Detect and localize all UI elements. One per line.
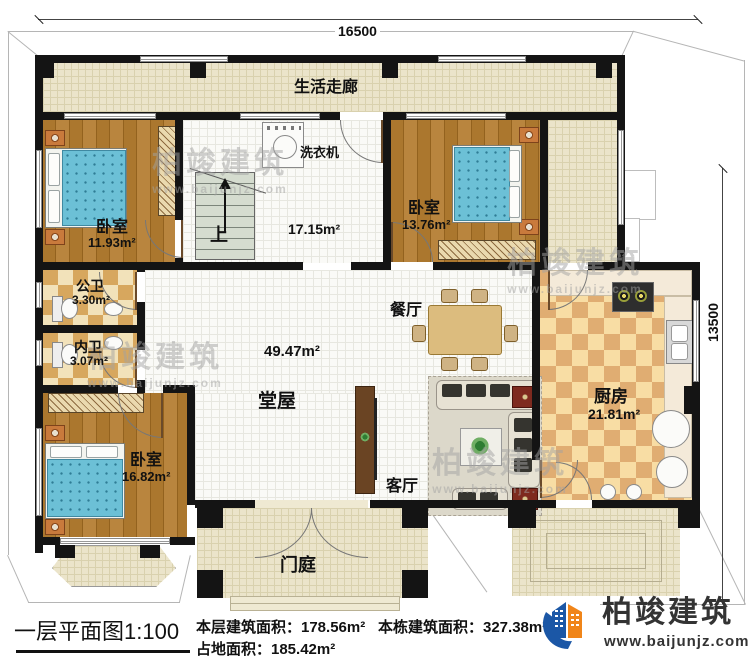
window	[438, 56, 526, 62]
porch-steps	[230, 596, 400, 611]
column	[508, 502, 536, 528]
window	[60, 538, 170, 544]
bed-pillow	[509, 150, 520, 182]
room-area-bedroom-right: 13.76m²	[402, 218, 450, 232]
door-gap	[340, 112, 383, 120]
bed-pillow	[48, 153, 60, 186]
wall	[35, 385, 118, 393]
plan-title-underline	[16, 650, 190, 653]
brand-logo-icon	[538, 594, 598, 654]
eave-diag-bottomleft	[7, 555, 29, 603]
eave-line-left	[8, 31, 9, 555]
wall	[692, 262, 700, 508]
bed-pillow	[509, 186, 520, 218]
stove-burner	[635, 290, 647, 302]
stove-burner	[618, 290, 630, 302]
dining-chair	[504, 325, 518, 342]
nightstand	[45, 519, 65, 535]
washing-machine-drum	[273, 135, 297, 159]
kitchen-sink	[666, 320, 693, 364]
nightstand	[45, 130, 65, 146]
wardrobe	[438, 240, 536, 260]
dining-chair	[471, 357, 488, 371]
bed-pillow	[48, 190, 60, 223]
bed-quilt	[62, 150, 126, 226]
nightstand	[519, 127, 539, 143]
window	[140, 56, 228, 62]
bath-sink	[104, 336, 123, 350]
stair-up-label: 上	[210, 226, 228, 246]
column	[678, 502, 700, 528]
window	[36, 340, 42, 366]
sofa-cushion	[514, 418, 532, 432]
room-label-bedroom-right: 卧室	[408, 200, 440, 218]
room-area-kitchen: 21.81m²	[588, 407, 640, 422]
eave-line-bottomleft	[28, 602, 180, 603]
wall	[35, 537, 60, 545]
sofa-cushion	[514, 458, 532, 472]
sofa-cushion	[466, 384, 486, 397]
wall	[35, 55, 625, 63]
wall	[137, 302, 145, 350]
room-area-bedroom-bottom: 16.82m²	[122, 470, 170, 484]
eave-diag-porch	[429, 510, 487, 592]
dimension-top-value: 16500	[335, 24, 380, 39]
wall	[351, 262, 391, 270]
window	[36, 428, 42, 516]
kitchen-table	[652, 410, 690, 448]
tv-cabinet-plant	[360, 432, 370, 442]
tv-screen	[374, 398, 377, 480]
wall	[532, 270, 540, 460]
room-label-kitchen: 厨房	[594, 388, 628, 407]
sink-basin	[671, 325, 688, 342]
dimension-tick	[718, 164, 727, 173]
bed-pillow	[50, 446, 82, 458]
bed-quilt	[47, 459, 123, 517]
floor-area-text: 本层建筑面积：178.56m²	[196, 620, 365, 637]
eave-line-top	[8, 31, 634, 32]
nightstand	[45, 425, 65, 441]
wall	[170, 537, 195, 545]
window	[64, 113, 156, 119]
land-area-text: 占地面积：185.42m²	[196, 642, 335, 659]
wall	[588, 262, 700, 270]
corridor-right-floor	[548, 113, 617, 263]
column	[382, 62, 398, 78]
washing-machine-controls	[267, 126, 301, 130]
appliance-label-washer: 洗衣机	[300, 146, 339, 160]
room-label-dining: 餐厅	[390, 302, 422, 320]
wall	[35, 262, 183, 270]
window	[36, 150, 42, 228]
coffee-table-plant	[470, 436, 490, 456]
column	[38, 62, 54, 78]
wall	[433, 262, 548, 270]
column	[190, 62, 206, 78]
wall	[163, 385, 195, 393]
eave-line-right	[744, 60, 745, 605]
eave-diag-bottomleft2	[179, 555, 191, 602]
room-label-bedroom-bottom: 卧室	[130, 452, 162, 470]
column	[140, 545, 160, 558]
wall	[187, 393, 195, 505]
kitchen-stove	[612, 282, 654, 312]
door-leaf	[391, 222, 393, 262]
room-label-porch: 门庭	[280, 556, 316, 576]
brand-name: 柏竣建筑	[602, 596, 734, 629]
window	[406, 113, 506, 119]
kitchen-table	[656, 456, 688, 488]
room-label-bedroom-left: 卧室	[96, 219, 128, 237]
bed-pillow	[86, 446, 118, 458]
wall	[183, 262, 303, 270]
room-area-bath-public: 3.30m²	[72, 294, 110, 307]
room-area-stairhall: 17.15m²	[288, 222, 340, 237]
wall	[540, 120, 548, 262]
wall	[43, 325, 137, 333]
dimension-right-value: 13500	[706, 300, 721, 345]
kitchen-stool	[626, 484, 642, 500]
brand-logo: 柏竣建筑 www.baijunjz.com	[538, 592, 748, 658]
room-area-bath-private: 3.07m²	[70, 355, 108, 368]
column	[197, 570, 223, 598]
column	[197, 500, 223, 528]
dining-chair	[471, 289, 488, 303]
window	[240, 113, 320, 119]
room-label-hall: 堂屋	[258, 392, 296, 413]
wall	[137, 262, 145, 272]
brand-site: www.baijunjz.com	[604, 634, 749, 651]
door-leaf	[381, 120, 383, 163]
eave-diag-topright2	[634, 31, 744, 61]
door-leaf	[540, 460, 542, 498]
wall	[383, 120, 391, 262]
nightstand	[45, 229, 65, 245]
door-leaf	[181, 220, 183, 258]
room-area-bedroom-left: 11.93m²	[88, 236, 136, 250]
sofa-cushion	[490, 384, 510, 397]
window	[36, 282, 42, 308]
room-area-hall: 49.47m²	[264, 344, 320, 361]
bed-quilt	[454, 147, 510, 221]
wall-pier	[684, 386, 700, 414]
terrace-inner-border2	[546, 533, 646, 569]
door-gap	[255, 500, 368, 508]
building-area-text: 本栋建筑面积：327.38m²	[378, 620, 547, 637]
door-leaf	[548, 270, 550, 310]
floor-plan-canvas: 柏竣建筑 www.baijunjz.com 柏竣建筑 www.baijunjz.…	[0, 0, 750, 662]
room-label-living: 客厅	[386, 478, 418, 496]
window	[693, 300, 699, 382]
wall	[175, 120, 183, 220]
door-leaf	[135, 272, 137, 310]
dimension-line-right	[722, 168, 723, 604]
sofa-cushion	[514, 438, 532, 452]
room-label-corridor: 生活走廊	[294, 79, 358, 97]
column	[402, 500, 428, 528]
sink-basin	[671, 343, 688, 360]
stair-arrow-up-icon	[219, 178, 231, 189]
dimension-line-top	[38, 19, 698, 20]
window	[618, 130, 624, 225]
column	[55, 545, 75, 558]
column	[596, 62, 612, 78]
washing-machine	[262, 122, 304, 168]
dining-table	[428, 305, 502, 355]
sofa-cushion	[442, 384, 462, 397]
nightstand	[519, 219, 539, 235]
wall	[137, 380, 145, 393]
dining-chair	[441, 289, 458, 303]
door-leaf	[135, 350, 137, 388]
column	[402, 570, 428, 598]
dining-chair	[441, 357, 458, 371]
plan-title: 一层平面图1:100	[14, 620, 179, 644]
dining-chair	[412, 325, 426, 342]
door-leaf	[161, 393, 163, 438]
kitchen-stool	[600, 484, 616, 500]
